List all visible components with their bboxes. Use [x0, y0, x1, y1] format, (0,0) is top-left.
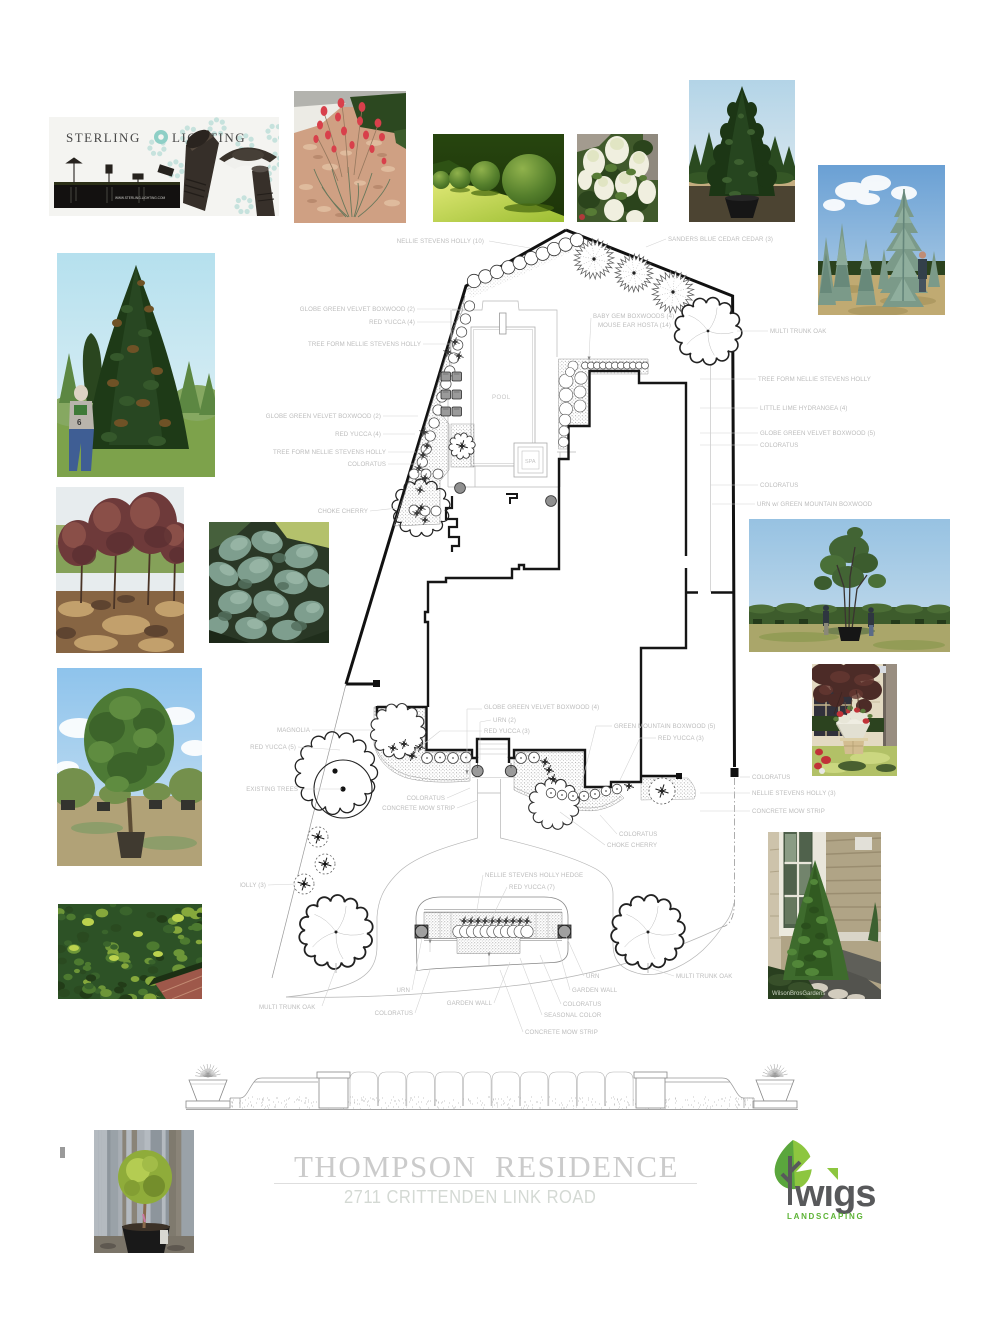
svg-text:MOUSE EAR HOSTA (14): MOUSE EAR HOSTA (14)	[598, 322, 671, 329]
svg-text:URN: URN	[586, 973, 600, 980]
svg-text:COLORATUS: COLORATUS	[375, 1010, 413, 1017]
svg-text:MULTI TRUNK OAK: MULTI TRUNK OAK	[770, 328, 826, 335]
svg-text:BABY GEM BOXWOODS (4): BABY GEM BOXWOODS (4)	[593, 313, 674, 320]
svg-text:STERLING: STERLING	[66, 130, 141, 145]
svg-text:COLORATUS: COLORATUS	[407, 795, 445, 802]
svg-text:URN: URN	[396, 987, 410, 994]
svg-text:LITTLE LIME HYDRANGEA (4): LITTLE LIME HYDRANGEA (4)	[760, 405, 848, 412]
svg-text:GARDEN WALL: GARDEN WALL	[572, 987, 618, 994]
svg-text:CONCRETE MOW STRIP: CONCRETE MOW STRIP	[382, 805, 455, 812]
svg-text:TREE FORM NELLIE STEVENS HOLLY: TREE FORM NELLIE STEVENS HOLLY	[758, 376, 871, 383]
svg-text:RED YUCCA (3): RED YUCCA (3)	[484, 728, 530, 735]
svg-text:RED YUCCA (3): RED YUCCA (3)	[658, 735, 704, 742]
svg-text:NELLIE STEVENS HOLLY (3): NELLIE STEVENS HOLLY (3)	[240, 882, 266, 889]
svg-text:RED YUCCA (4): RED YUCCA (4)	[369, 319, 415, 326]
svg-text:WWW.STERLING-LIGHTING.COM: WWW.STERLING-LIGHTING.COM	[115, 196, 165, 200]
svg-text:MULTI TRUNK OAK: MULTI TRUNK OAK	[676, 973, 732, 980]
svg-text:GARDEN WALL: GARDEN WALL	[447, 1000, 493, 1007]
svg-text:URN (2): URN (2)	[493, 717, 516, 724]
svg-text:SPA: SPA	[525, 459, 536, 465]
svg-text:LANDSCAPING: LANDSCAPING	[787, 1212, 864, 1221]
svg-text:SANDERS BLUE CEDAR CEDAR (3): SANDERS BLUE CEDAR CEDAR (3)	[668, 236, 773, 243]
svg-text:6: 6	[77, 418, 82, 427]
svg-text:MAGNOLIA: MAGNOLIA	[277, 727, 311, 734]
svg-text:CHOKE CHERRY: CHOKE CHERRY	[318, 508, 368, 515]
svg-text:NELLIE STEVENS HOLLY HEDGE: NELLIE STEVENS HOLLY HEDGE	[485, 872, 583, 879]
svg-text:EXISTING TREES: EXISTING TREES	[246, 786, 298, 793]
svg-text:COLORATUS: COLORATUS	[760, 442, 798, 449]
svg-text:COLORATUS: COLORATUS	[760, 482, 798, 489]
svg-text:COLORATUS: COLORATUS	[752, 774, 790, 781]
svg-text:COLORATUS: COLORATUS	[348, 461, 386, 468]
svg-text:wigs: wigs	[794, 1173, 875, 1215]
svg-text:GLOBE GREEN VELVET BOXWOOD (2): GLOBE GREEN VELVET BOXWOOD (2)	[266, 413, 381, 420]
svg-text:RED YUCCA (4): RED YUCCA (4)	[335, 431, 381, 438]
svg-text:RED YUCCA (5): RED YUCCA (5)	[250, 744, 296, 751]
svg-text:URN w/ GREEN MOUNTAIN BOXWOOD: URN w/ GREEN MOUNTAIN BOXWOOD	[757, 501, 873, 508]
svg-text:TREE FORM NELLIE STEVENS HOLLY: TREE FORM NELLIE STEVENS HOLLY	[273, 449, 386, 456]
svg-text:CONCRETE MOW STRIP: CONCRETE MOW STRIP	[752, 808, 825, 815]
svg-text:NELLIE STEVENS HOLLY (10): NELLIE STEVENS HOLLY (10)	[397, 238, 484, 245]
svg-text:NELLIE STEVENS HOLLY (3): NELLIE STEVENS HOLLY (3)	[752, 790, 836, 797]
svg-text:CONCRETE MOW STRIP: CONCRETE MOW STRIP	[525, 1029, 598, 1036]
svg-text:GREEN MOUNTAIN BOXWOOD (5): GREEN MOUNTAIN BOXWOOD (5)	[614, 723, 715, 730]
svg-text:SEASONAL COLOR: SEASONAL COLOR	[544, 1012, 602, 1019]
svg-text:COLORATUS: COLORATUS	[619, 831, 657, 838]
svg-text:COLORATUS: COLORATUS	[563, 1001, 601, 1008]
svg-text:RED YUCCA (7): RED YUCCA (7)	[509, 884, 555, 891]
svg-text:MULTI TRUNK OAK: MULTI TRUNK OAK	[259, 1004, 315, 1011]
svg-text:TREE FORM NELLIE STEVENS HOLLY: TREE FORM NELLIE STEVENS HOLLY	[308, 341, 421, 348]
svg-text:GLOBE GREEN VELVET BOXWOOD (4): GLOBE GREEN VELVET BOXWOOD (4)	[484, 704, 599, 711]
svg-text:CHOKE CHERRY: CHOKE CHERRY	[607, 842, 657, 849]
svg-text:GLOBE GREEN VELVET BOXWOOD (5: GLOBE GREEN VELVET BOXWOOD (5)	[760, 430, 875, 437]
svg-text:GLOBE GREEN VELVET BOXWOOD (2): GLOBE GREEN VELVET BOXWOOD (2)	[300, 306, 415, 313]
svg-text:POOL: POOL	[492, 395, 511, 401]
